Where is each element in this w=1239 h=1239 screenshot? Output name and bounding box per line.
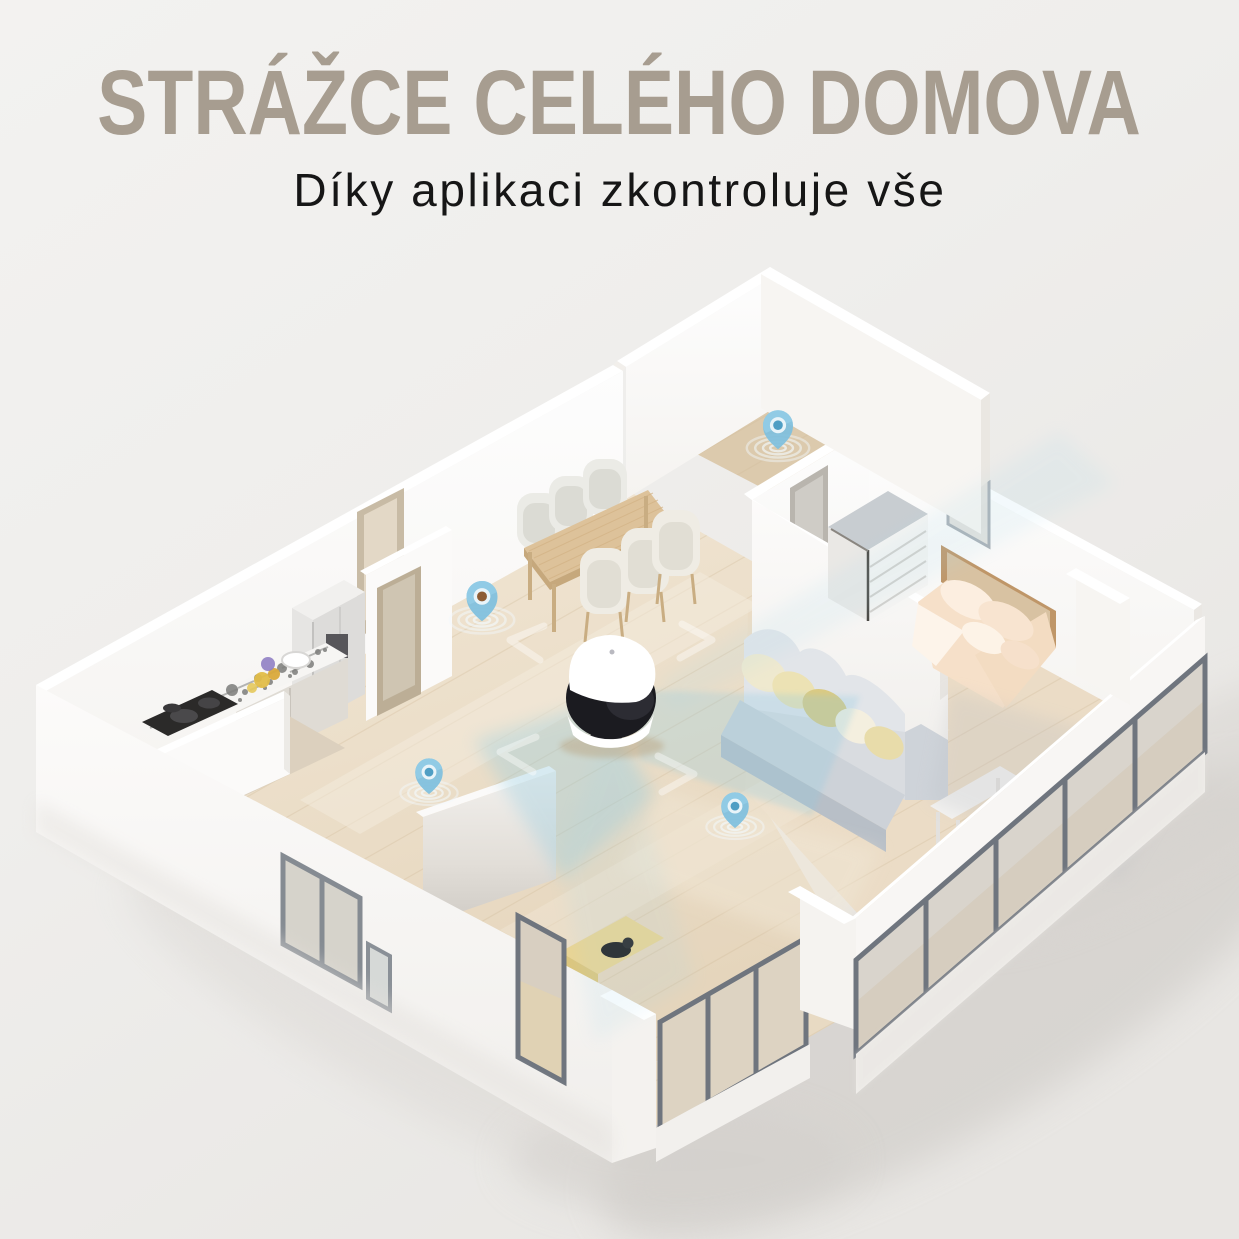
svg-text:STRÁŽCE CELÉHO DOMOVA: STRÁŽCE CELÉHO DOMOVA <box>97 51 1141 154</box>
svg-text:Díky aplikaci zkontroluje vše: Díky aplikaci zkontroluje vše <box>293 164 946 216</box>
